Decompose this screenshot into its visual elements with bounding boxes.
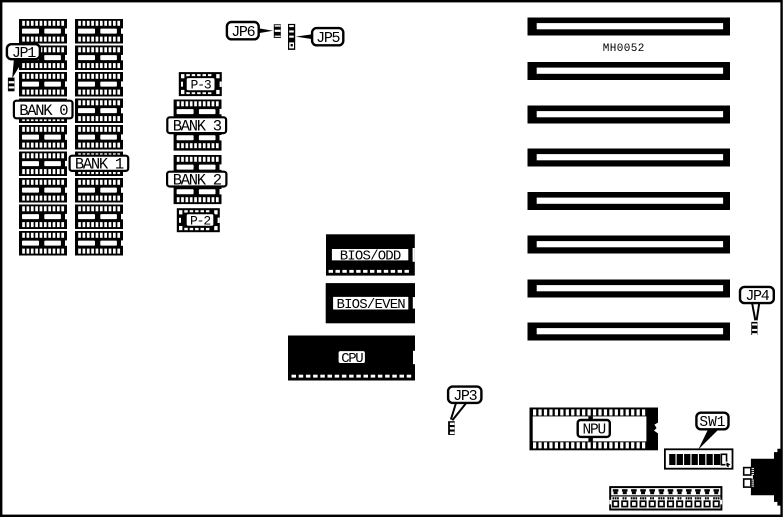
svg-text:BIOS/ODD: BIOS/ODD — [340, 248, 401, 264]
svg-text:BIOS/EVEN: BIOS/EVEN — [336, 297, 405, 313]
svg-text:P-2: P-2 — [190, 213, 210, 228]
svg-text:CPU: CPU — [341, 351, 363, 367]
svg-text:JP3: JP3 — [453, 388, 477, 405]
svg-text:JP4: JP4 — [745, 288, 769, 305]
svg-text:SW1: SW1 — [699, 415, 725, 431]
svg-text:BANK 3: BANK 3 — [173, 117, 222, 135]
svg-text:NPU: NPU — [582, 422, 605, 438]
svg-text:P-3: P-3 — [191, 78, 211, 93]
svg-text:JP6: JP6 — [231, 24, 255, 41]
svg-text:MH0052: MH0052 — [603, 43, 645, 55]
svg-text:JP5: JP5 — [316, 30, 340, 47]
svg-text:BANK 0: BANK 0 — [19, 102, 68, 120]
svg-text:JP1: JP1 — [12, 45, 36, 62]
svg-text:BANK 2: BANK 2 — [173, 171, 222, 189]
svg-text:BANK 1: BANK 1 — [75, 156, 124, 174]
